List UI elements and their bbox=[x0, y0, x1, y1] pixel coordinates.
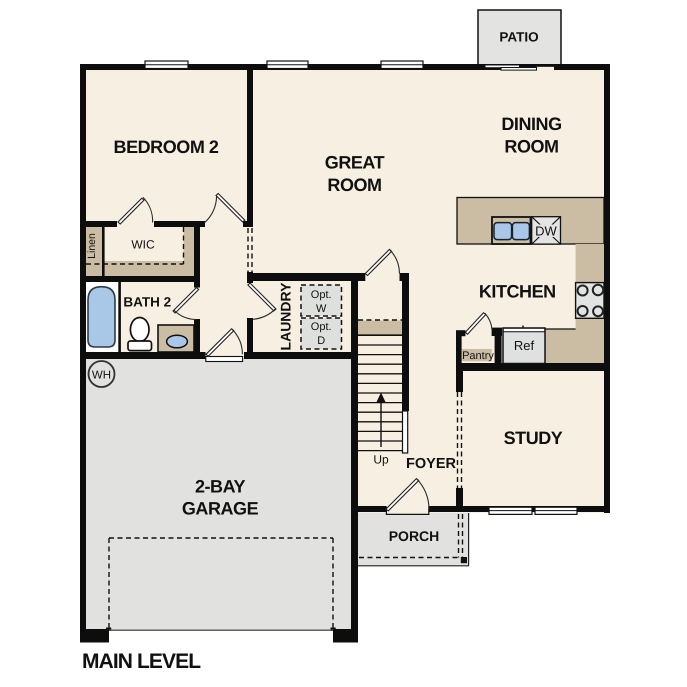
svg-text:WIC: WIC bbox=[131, 238, 155, 252]
svg-text:Up: Up bbox=[373, 453, 389, 467]
svg-text:2-BAY: 2-BAY bbox=[195, 477, 246, 497]
svg-text:WH: WH bbox=[92, 369, 111, 381]
svg-text:FOYER: FOYER bbox=[406, 456, 456, 472]
svg-text:GREAT: GREAT bbox=[325, 153, 385, 173]
svg-text:PORCH: PORCH bbox=[389, 528, 440, 544]
svg-text:BATH 2: BATH 2 bbox=[123, 295, 171, 310]
svg-text:BEDROOM 2: BEDROOM 2 bbox=[114, 137, 219, 157]
svg-text:W: W bbox=[316, 303, 327, 315]
svg-text:KITCHEN: KITCHEN bbox=[479, 282, 556, 302]
svg-text:Pantry: Pantry bbox=[462, 350, 494, 362]
svg-text:STUDY: STUDY bbox=[504, 428, 563, 448]
svg-text:LAUNDRY: LAUNDRY bbox=[278, 282, 294, 351]
svg-text:DINING: DINING bbox=[501, 114, 561, 134]
svg-text:PATIO: PATIO bbox=[499, 30, 538, 45]
svg-text:DW: DW bbox=[535, 224, 557, 239]
svg-text:MAIN LEVEL: MAIN LEVEL bbox=[82, 650, 201, 673]
svg-text:Ref: Ref bbox=[514, 338, 535, 353]
svg-text:ROOM: ROOM bbox=[327, 175, 381, 195]
svg-text:ROOM: ROOM bbox=[504, 137, 558, 157]
svg-text:D: D bbox=[317, 335, 325, 347]
svg-text:Opt.: Opt. bbox=[311, 321, 332, 333]
svg-text:Linen: Linen bbox=[86, 233, 98, 259]
svg-text:GARAGE: GARAGE bbox=[182, 499, 259, 519]
svg-text:Opt.: Opt. bbox=[311, 289, 332, 301]
